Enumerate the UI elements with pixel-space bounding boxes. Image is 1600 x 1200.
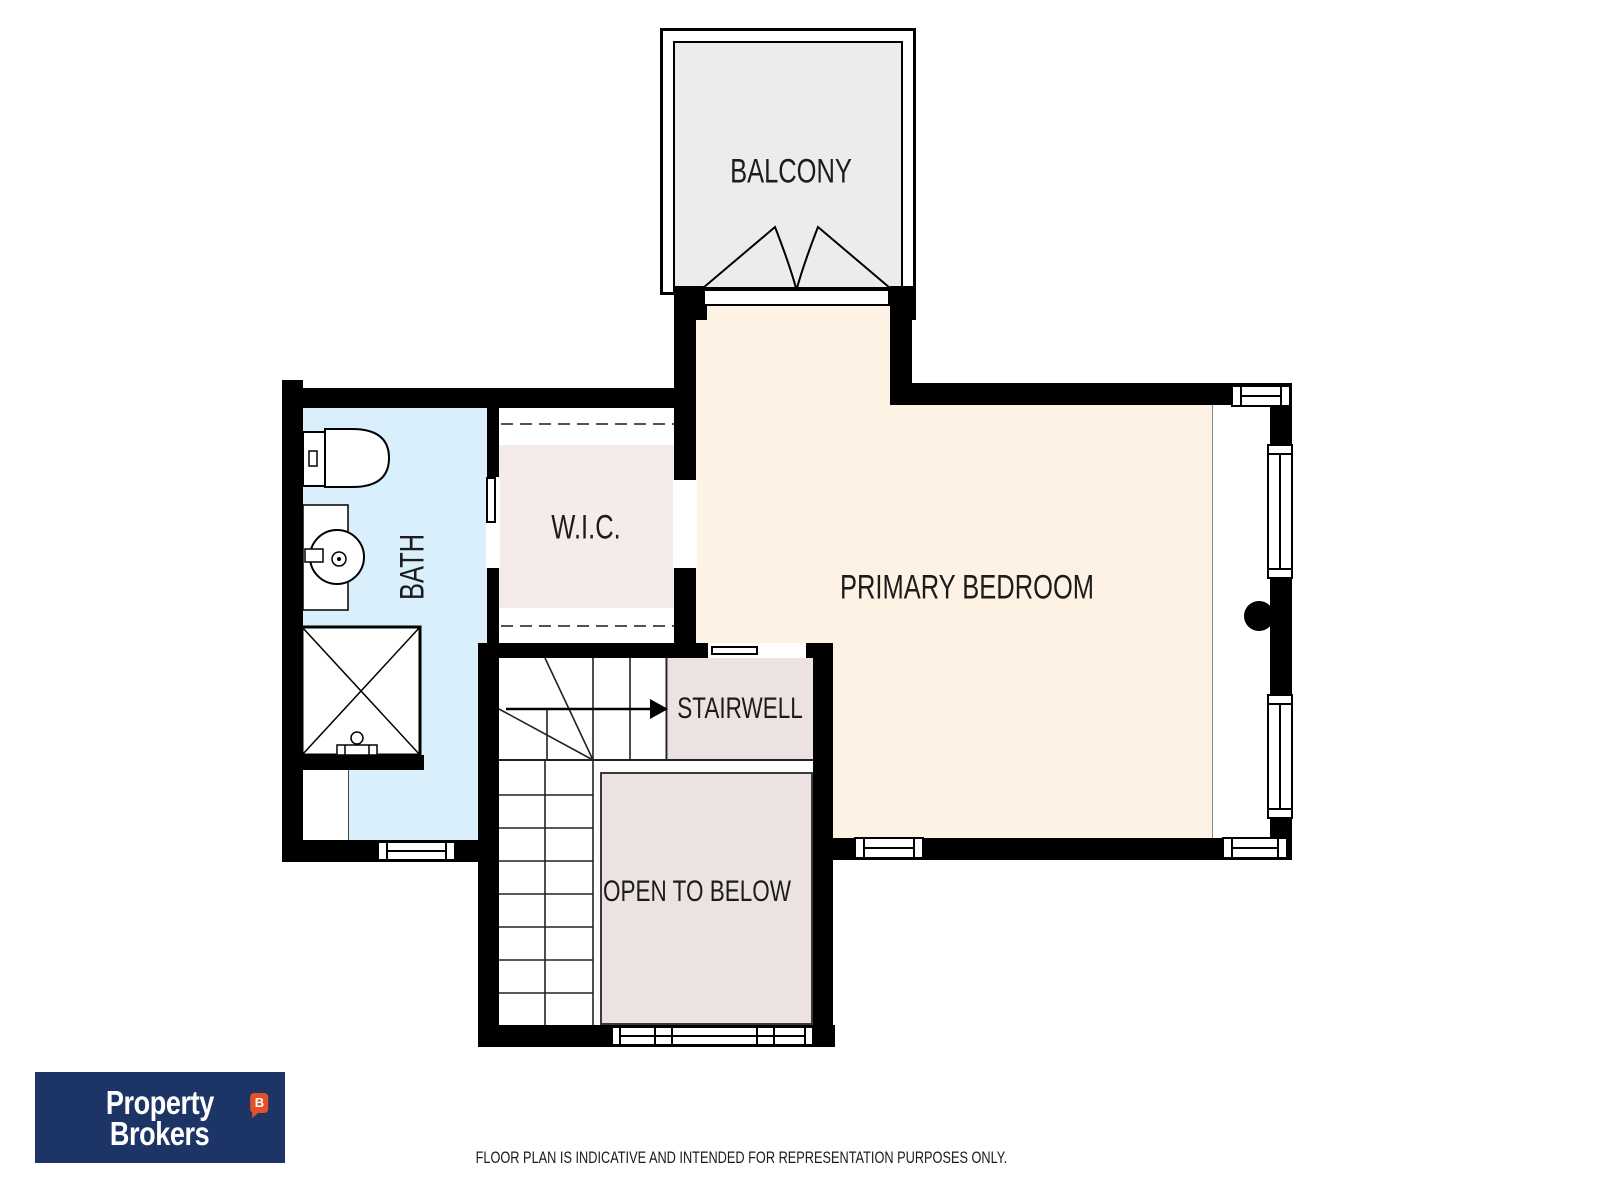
stair-direction-arrow — [506, 699, 668, 719]
window-top-icon — [1232, 386, 1290, 406]
window-bedroom-bottom-right-icon — [1223, 838, 1287, 858]
window-stair-bottom-icon — [612, 1027, 813, 1045]
balcony-double-door-icon — [703, 227, 890, 288]
bath-label: BATH — [394, 534, 433, 600]
logo-b-badge-icon: B — [250, 1093, 268, 1113]
primary-bedroom-label: PRIMARY BEDROOM — [840, 569, 1094, 608]
window-bath-icon — [378, 842, 455, 860]
wic-label: W.I.C. — [551, 509, 620, 548]
stairwell-label: STAIRWELL — [677, 692, 802, 726]
logo-line-1: Property B — [106, 1087, 214, 1118]
vanity-sink-icon — [303, 505, 364, 610]
window-bedroom-bottom-left-icon — [855, 838, 923, 858]
window-right-lower-icon — [1268, 695, 1292, 818]
door-pivot-dot — [1244, 601, 1274, 631]
window-right-upper-icon — [1268, 445, 1292, 578]
window-icons — [378, 386, 1292, 1045]
balcony-label: BALCONY — [730, 153, 852, 192]
open-to-below-label: OPEN TO BELOW — [603, 875, 791, 909]
toilet-icon — [303, 429, 389, 487]
floor-plan-canvas: BALCONY PRIMARY BEDROOM W.I.C. BATH STAI… — [0, 0, 1600, 1200]
logo-text-brokers: Brokers — [110, 1115, 209, 1152]
logo-line-2: Brokers — [110, 1118, 209, 1149]
disclaimer-text: FLOOR PLAN IS INDICATIVE AND INTENDED FO… — [141, 1148, 1341, 1168]
